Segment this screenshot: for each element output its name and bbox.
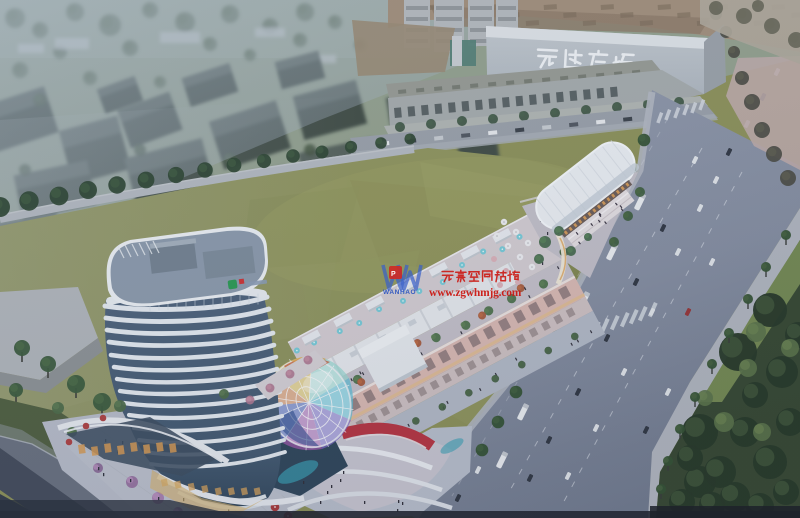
svg-text:www.zgwhmjg.com: www.zgwhmjg.com — [429, 287, 522, 299]
svg-text:P: P — [391, 271, 396, 278]
svg-text:WANHAO: WANHAO — [383, 289, 416, 296]
